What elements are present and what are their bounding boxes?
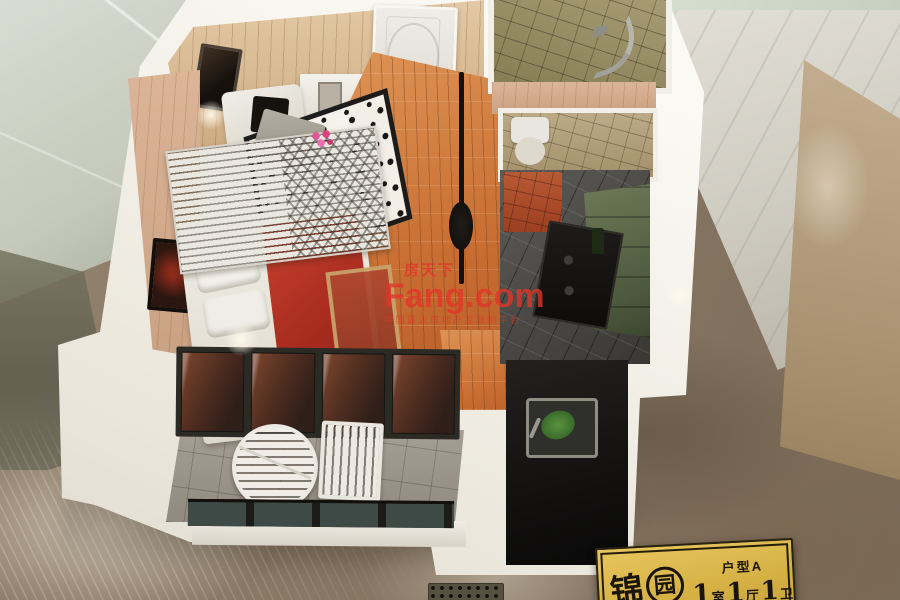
floor-lamp-shade (449, 202, 473, 250)
flash-glare (196, 100, 226, 130)
layout-count: 1 (760, 575, 780, 600)
table-slat-divider (239, 445, 311, 479)
layout-unit: 室 (711, 586, 725, 600)
sink (526, 398, 598, 458)
lattice-partition-screen (165, 126, 391, 275)
faucet (529, 417, 542, 439)
project-name-char-circled: 园 (644, 565, 685, 600)
layout-count: 1 (726, 577, 746, 600)
flash-glare (224, 322, 258, 356)
bottle (592, 228, 604, 254)
plaque-inner-border: 锦 园 户型A 1 室 1 厅 1 卫 (600, 543, 792, 600)
flower-vase (308, 128, 338, 158)
showroom-photo: 房天下 Fang.com 中国最大房地产互联网平台 锦 园 户型A 1 室 1 … (0, 0, 900, 600)
glass-door-pane (391, 354, 455, 435)
fang-watermark: 房天下 Fang.com 中国最大房地产互联网平台 (384, 263, 554, 325)
glass-door-pane (251, 352, 315, 433)
balcony-round-table (232, 424, 318, 510)
unit-type-label: 户型A (691, 553, 794, 577)
kitchen-dark-cabinet-block (506, 360, 628, 565)
floor-lamp-pole (459, 72, 464, 284)
watermark-slogan: 中国最大房地产互联网平台 (384, 316, 554, 325)
project-name-char: 锦 (607, 562, 646, 600)
balcony-chair (318, 420, 384, 501)
glass-door-pane (181, 352, 245, 433)
balcony-sliding-doors (176, 347, 461, 440)
project-name: 锦 园 (609, 561, 685, 600)
unit-plaque: 锦 园 户型A 1 室 1 厅 1 卫 (595, 538, 797, 600)
floor-vent-grate (428, 583, 504, 600)
watermark-brand-en: Fang.com (384, 279, 554, 313)
layout-unit: 厅 (745, 584, 759, 600)
watermark-brand-cn: 房天下 (404, 263, 554, 278)
flash-glare (666, 282, 692, 308)
plaque-unit-info: 户型A 1 室 1 厅 1 卫 (691, 553, 796, 600)
sink-basin-contents (537, 406, 579, 444)
shower-arm (578, 15, 645, 79)
shower-room (488, 0, 672, 94)
unit-layout: 1 室 1 厅 1 卫 (692, 574, 796, 600)
balcony-railing (188, 499, 454, 528)
layout-count: 1 (692, 579, 712, 600)
layout-unit: 卫 (779, 582, 793, 600)
toilet-bowl (515, 137, 545, 165)
